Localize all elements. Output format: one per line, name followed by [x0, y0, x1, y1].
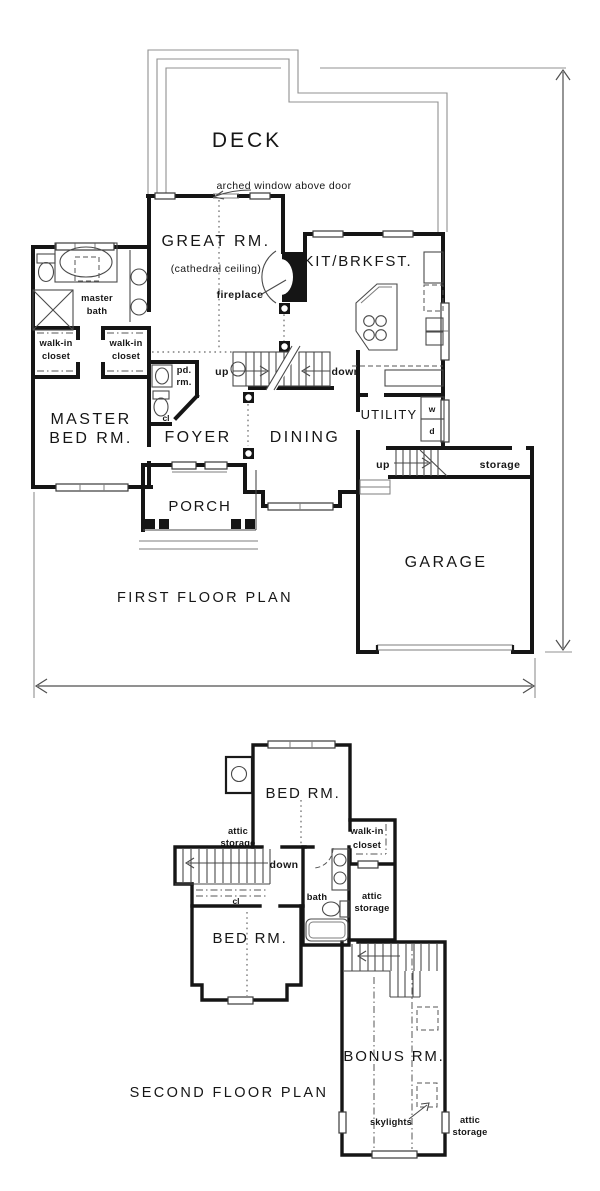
utility-label: UTILITY — [361, 407, 418, 422]
garage-stairs — [360, 450, 447, 494]
skylights-label: skylights — [370, 1117, 412, 1127]
bonus-stairs — [344, 944, 437, 997]
arched-window-note: arched window above door — [216, 180, 351, 192]
upper-stairs — [175, 849, 270, 896]
chimney — [226, 757, 252, 793]
walk-in-closet-right-label-2: closet — [112, 351, 140, 361]
walk-in-closet-label-2: closet — [353, 840, 381, 850]
storage-label: storage — [480, 459, 521, 471]
stairs-down-label-2f: down — [269, 859, 298, 871]
master-bed-label-2: BED RM. — [49, 430, 132, 447]
walk-in-closet-left-label-1: walk-in — [39, 338, 73, 348]
master-bath-label-1: master — [81, 293, 113, 303]
master-bath-label-2: bath — [87, 306, 108, 316]
powder-room-label-1: pd. — [177, 365, 192, 375]
walk-in-closet-left-label-2: closet — [42, 351, 70, 361]
floor-plan-sheet: DECK — [0, 0, 600, 1191]
bedroom-lower-label: BED RM. — [212, 930, 287, 947]
attic-storage-bonus-label-2: storage — [453, 1127, 488, 1137]
fireplace-label: fireplace — [217, 289, 264, 301]
washer-label: w — [428, 404, 436, 414]
garage-stairs-up-label: up — [376, 459, 390, 471]
fireplace — [262, 251, 307, 303]
stairs-down-label: down — [331, 366, 360, 378]
bedroom-upper-label: BED RM. — [265, 785, 340, 802]
garage-door — [377, 645, 513, 652]
first-floor-plan: DECK — [33, 50, 572, 698]
second-floor-plan: BED RM. attic storage walk-in closet dow… — [130, 741, 488, 1158]
kitchen-fixtures — [352, 252, 443, 386]
powder-room-fixtures — [152, 365, 172, 416]
main-stairs — [231, 346, 330, 390]
second-floor-caption: SECOND FLOOR PLAN — [130, 1085, 329, 1101]
ceiling-lines — [247, 800, 301, 996]
walk-in-closet-right-label-1: walk-in — [109, 338, 143, 348]
attic-storage-mid-label-1: attic — [362, 891, 382, 901]
first-floor-caption: FIRST FLOOR PLAN — [117, 590, 293, 606]
deck-outline — [148, 50, 447, 232]
garage-label: GARAGE — [405, 554, 488, 571]
closet-label-2f: cl — [232, 896, 239, 906]
walk-in-closet-label-1: walk-in — [350, 826, 384, 836]
bonus-room-label: BONUS RM. — [343, 1048, 444, 1065]
dryer-label: d — [429, 426, 434, 436]
great-room-label: GREAT RM. — [161, 233, 270, 250]
floor-plan-drawing: DECK — [0, 0, 600, 1191]
foyer-label: FOYER — [164, 429, 231, 446]
kitchen-label: KIT/BRKFST. — [304, 253, 413, 270]
attic-storage-bonus-label-1: attic — [460, 1115, 480, 1125]
foyer-closet-label: cl — [162, 413, 169, 423]
master-bed-label-1: MASTER — [50, 411, 131, 428]
attic-storage-left-label-1: attic — [228, 826, 248, 836]
bath-label: bath — [307, 892, 328, 902]
dining-label: DINING — [270, 429, 340, 446]
stairs-up-label: up — [215, 366, 229, 378]
dimension-lines — [34, 68, 572, 698]
powder-room-label-2: rm. — [176, 377, 191, 387]
porch-label: PORCH — [168, 498, 231, 515]
attic-storage-left-label-2: storage — [221, 838, 256, 848]
deck-label: DECK — [212, 129, 282, 152]
cathedral-ceiling-note: (cathedral ceiling) — [171, 263, 261, 275]
attic-storage-mid-label-2: storage — [355, 903, 390, 913]
